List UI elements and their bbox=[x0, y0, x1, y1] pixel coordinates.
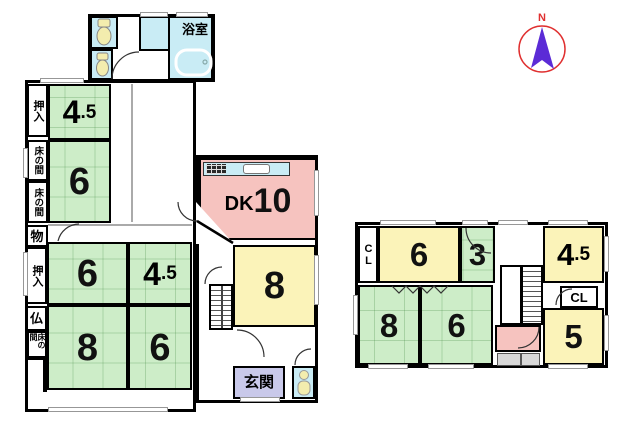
f1-oshiire-mid: 押入 bbox=[26, 247, 47, 304]
closet-left-label: CL bbox=[363, 243, 374, 267]
tokonoma-b-label: 床の間 bbox=[33, 188, 43, 217]
f2-closet-left: CL bbox=[358, 226, 378, 283]
altar-label: 仏 bbox=[30, 312, 43, 325]
sink-icon bbox=[243, 164, 270, 174]
room-size-label: 6 bbox=[69, 163, 90, 201]
corridor-track bbox=[131, 84, 133, 222]
window bbox=[176, 12, 208, 17]
floor-plan-page: { "compass": { "north_label": "N" }, "co… bbox=[0, 0, 640, 437]
window bbox=[428, 364, 474, 369]
f2-room-6-top: 6 bbox=[378, 226, 460, 283]
window bbox=[314, 170, 319, 216]
f1-tokonoma-b: 床の間 bbox=[27, 181, 48, 223]
f1-altar: 仏 bbox=[26, 306, 47, 331]
dk-size-label: 10 bbox=[254, 184, 292, 218]
window bbox=[498, 220, 528, 225]
room-size-label: 6 bbox=[410, 238, 428, 271]
oshiire-top-label: 押入 bbox=[32, 100, 43, 122]
f1-oshiire-top: 押入 bbox=[27, 84, 48, 137]
corridor-track bbox=[48, 224, 192, 226]
window bbox=[23, 252, 28, 296]
window bbox=[23, 148, 28, 178]
window bbox=[462, 220, 488, 225]
room-size-label: 6 bbox=[149, 329, 170, 367]
room-size-label: 5 bbox=[564, 320, 582, 353]
f1-room-6-top: 6 bbox=[48, 140, 111, 223]
f1-storage: 物 bbox=[26, 225, 48, 247]
entrance-label: 玄関 bbox=[244, 375, 274, 390]
window bbox=[40, 78, 84, 83]
wall-segment bbox=[43, 356, 47, 392]
oshiire-mid-label: 押入 bbox=[31, 265, 42, 287]
dk-label: DK bbox=[225, 194, 254, 214]
f1-room-8-left: 8 bbox=[47, 305, 128, 390]
window bbox=[604, 315, 609, 351]
room-size-label-sub: .5 bbox=[161, 264, 177, 283]
room-size-label: 6 bbox=[77, 255, 98, 293]
f2-closet-right: CL bbox=[560, 286, 598, 308]
f1-room-8-right: 8 bbox=[233, 245, 316, 327]
window bbox=[48, 407, 168, 412]
f2-room-8: 8 bbox=[358, 285, 420, 365]
compass: N bbox=[512, 8, 576, 78]
f2-storage-box bbox=[497, 353, 521, 366]
room-size-label: 6 bbox=[447, 309, 465, 342]
closet-right-label: CL bbox=[570, 291, 587, 304]
window bbox=[548, 364, 588, 369]
toilet-icon bbox=[92, 52, 113, 79]
room-size-label: 8 bbox=[77, 329, 98, 367]
f2-wc bbox=[495, 325, 541, 352]
storage-label: 物 bbox=[30, 230, 43, 243]
f1-room-4-5-top: 4.5 bbox=[48, 84, 111, 140]
window bbox=[353, 295, 358, 335]
window bbox=[314, 255, 319, 305]
room-size-label: 3 bbox=[469, 239, 486, 270]
f2-room-6-bottom: 6 bbox=[420, 285, 493, 365]
compass-north-label: N bbox=[538, 12, 546, 24]
f1-stairs bbox=[209, 284, 233, 330]
bathtub-icon bbox=[174, 48, 214, 78]
f1-room-4-5-mid: 4.5 bbox=[128, 242, 192, 305]
room-size-label: 8 bbox=[380, 309, 398, 342]
window bbox=[380, 220, 436, 225]
stove-icon bbox=[206, 164, 226, 174]
f1-tokonoma-a: 床の間 bbox=[27, 140, 48, 181]
f1-entrance: 玄関 bbox=[233, 366, 285, 399]
tokonoma-a-label: 床の間 bbox=[33, 146, 43, 175]
f1-tokonoma-small: 床の間 bbox=[27, 331, 47, 358]
tokonoma-small-label: 床の間 bbox=[29, 333, 45, 356]
person-icon bbox=[295, 369, 313, 397]
north-arrow-icon bbox=[531, 27, 554, 69]
f1-washroom bbox=[139, 16, 170, 51]
window bbox=[140, 12, 168, 17]
f2-storage-box bbox=[521, 353, 540, 366]
window bbox=[604, 236, 609, 272]
f2-room-3: 3 bbox=[460, 226, 495, 283]
room-size-label: 4 bbox=[557, 239, 574, 270]
window bbox=[368, 364, 408, 369]
window bbox=[548, 220, 588, 225]
stairs-divider bbox=[221, 286, 223, 328]
room-size-label-sub: .5 bbox=[80, 103, 96, 122]
f1-room-6-bottom: 6 bbox=[128, 305, 192, 390]
bathroom-label: 浴室 bbox=[182, 23, 208, 36]
toilet-icon bbox=[92, 18, 116, 47]
room-size-label-sub: .5 bbox=[574, 245, 590, 264]
entrance-door bbox=[240, 397, 280, 402]
f1-room-6-mid: 6 bbox=[47, 242, 128, 305]
room-size-label: 4 bbox=[143, 258, 161, 290]
f2-room-4-5: 4.5 bbox=[543, 226, 604, 283]
f2-stairs bbox=[521, 265, 543, 325]
f2-room-5: 5 bbox=[543, 308, 604, 365]
f2-stairs-landing bbox=[500, 265, 522, 325]
room-size-label: 8 bbox=[264, 267, 285, 305]
room-size-label: 4 bbox=[63, 96, 81, 128]
